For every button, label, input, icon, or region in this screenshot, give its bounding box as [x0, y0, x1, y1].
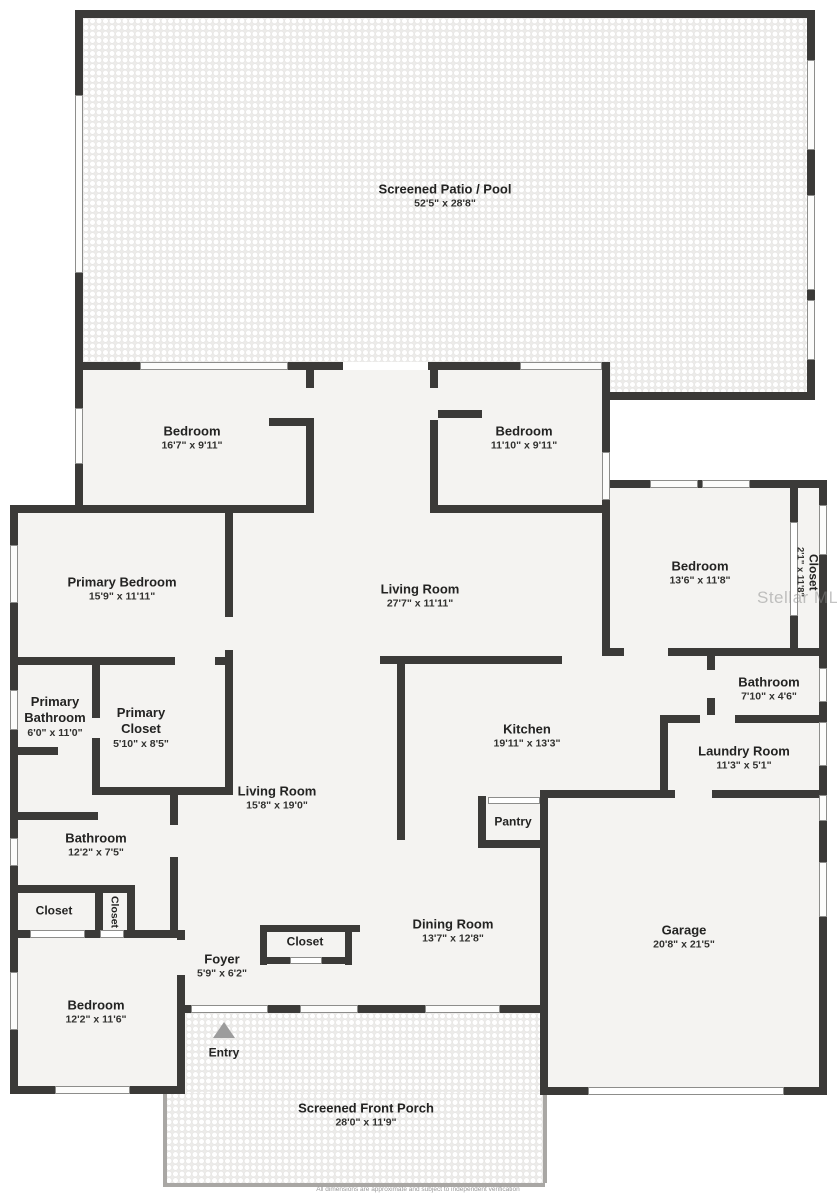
wall-segment: [782, 1087, 827, 1095]
room-dimensions: 13'6" x 11'8": [669, 575, 730, 588]
room-name: Primary Bathroom: [15, 694, 95, 727]
wall-segment: [602, 392, 815, 400]
room-name: Closet: [107, 896, 120, 928]
room-name: Bedroom: [491, 423, 557, 439]
room-dimensions: 11'10" x 9'11": [491, 440, 557, 453]
room-name: Dining Room: [413, 916, 494, 932]
room-name: Laundry Room: [698, 743, 790, 759]
wall-segment: [790, 488, 798, 522]
screen-wall-segment: [543, 1095, 547, 1183]
wall-segment: [397, 664, 405, 840]
wall-segment: [540, 1087, 590, 1095]
stellar-mls-watermark: Stellar MLS: [757, 588, 837, 608]
window: [819, 795, 827, 821]
room-name: Living Room: [238, 783, 317, 799]
wall-segment: [225, 650, 233, 795]
wall-segment: [18, 747, 58, 755]
wall-segment: [10, 505, 314, 513]
room-name: Bathroom: [65, 830, 126, 846]
room-dimensions: 13'7" x 12'8": [413, 933, 494, 946]
room-label-living-room-upper: Living Room 27'7" x 11'11": [381, 581, 460, 610]
room-name: Kitchen: [494, 721, 561, 737]
room-name: Closet: [36, 904, 73, 919]
room-dimensions: 15'9" x 11'11": [67, 591, 176, 604]
wall-segment: [75, 10, 815, 18]
door-opening: [100, 930, 124, 938]
room-label-kitchen: Kitchen 19'11" x 13'3": [494, 721, 561, 750]
wall-segment: [438, 410, 482, 418]
wall-segment: [260, 957, 290, 964]
wall-segment: [322, 957, 352, 964]
door-opening: [588, 1087, 784, 1095]
window: [75, 95, 83, 273]
window: [650, 480, 698, 488]
wall-segment: [668, 648, 827, 656]
wall-segment: [660, 715, 668, 792]
room-dimensions: 11'3" x 5'1": [698, 760, 790, 773]
room-name: Garage: [653, 922, 715, 938]
wall-segment: [269, 418, 314, 426]
window: [520, 362, 602, 370]
entry-arrow-icon: [213, 1022, 235, 1038]
room-dimensions: 12'2" x 7'5": [65, 847, 126, 860]
room-label-bedroom-right: Bedroom 13'6" x 11'8": [669, 558, 730, 587]
room-dimensions: 19'11" x 13'3": [494, 738, 561, 751]
room-dimensions: 6'0" x 11'0": [15, 727, 95, 740]
window: [702, 480, 750, 488]
room-dimensions: 28'0" x 11'9": [298, 1117, 434, 1130]
window: [140, 362, 288, 370]
door-opening: [30, 930, 85, 938]
room-label-living-room-lower: Living Room 15'8" x 19'0": [238, 783, 317, 812]
room-label-garage: Garage 20'8" x 21'5": [653, 922, 715, 951]
room-dimensions: 27'7" x 11'11": [381, 598, 460, 611]
room-label-closet-left-vertical: Closet: [107, 896, 120, 928]
wall-segment: [225, 505, 233, 617]
room-name: Living Room: [381, 581, 460, 597]
wall-segment: [735, 715, 819, 723]
window: [807, 60, 815, 150]
room-name: Foyer: [197, 951, 247, 967]
room-name: Pantry: [494, 815, 531, 830]
wall-segment: [602, 648, 624, 656]
room-dimensions: 5'10" x 8'5": [106, 738, 176, 751]
door-opening: [191, 1005, 268, 1013]
room-label-bedroom-top-right: Bedroom 11'10" x 9'11": [491, 423, 557, 452]
door-opening: [290, 957, 322, 964]
room-label-primary-bathroom: Primary Bathroom 6'0" x 11'0": [15, 694, 95, 740]
wall-segment: [215, 657, 233, 665]
wall-segment: [430, 505, 610, 513]
room-label-closet-foyer: Closet: [287, 935, 324, 950]
screened-area: [610, 362, 807, 392]
room-label-primary-closet: Primary Closet 5'10" x 8'5": [106, 705, 176, 751]
wall-segment: [707, 656, 715, 670]
room-label-closet-left: Closet: [36, 904, 73, 919]
wall-segment: [177, 975, 185, 1094]
wall-segment: [10, 812, 98, 820]
room-name: Screened Patio / Pool: [379, 181, 512, 197]
wall-segment: [170, 857, 178, 930]
window: [10, 838, 18, 866]
wall-segment: [183, 1005, 191, 1013]
room-name: Primary Bedroom: [67, 574, 176, 590]
room-label-front-porch: Screened Front Porch 28'0" x 11'9": [298, 1100, 434, 1129]
window: [819, 862, 827, 917]
room-name: Entry: [209, 1046, 240, 1061]
room-dimensions: 5'9" x 6'2": [197, 968, 247, 981]
window: [300, 1005, 358, 1013]
wall-segment: [478, 840, 548, 848]
door-opening: [488, 797, 540, 804]
room-name: Bedroom: [669, 558, 730, 574]
room-name: Bedroom: [161, 423, 222, 439]
window: [807, 195, 815, 290]
screen-wall-segment: [163, 1093, 167, 1186]
wall-segment: [540, 790, 675, 798]
window: [10, 972, 18, 1030]
window: [425, 1005, 500, 1013]
window: [55, 1086, 130, 1094]
window: [819, 722, 827, 766]
wall-segment: [170, 795, 178, 825]
room-dimensions: 15'8" x 19'0": [238, 800, 317, 813]
window: [10, 545, 18, 603]
room-label-pantry: Pantry: [494, 815, 531, 830]
room-dimensions: 20'8" x 21'5": [653, 939, 715, 952]
room-name: Closet: [287, 935, 324, 950]
room-dimensions: 52'5" x 28'8": [379, 198, 512, 211]
room-name: Bedroom: [65, 997, 126, 1013]
room-label-laundry-room: Laundry Room 11'3" x 5'1": [698, 743, 790, 772]
wall-segment: [177, 930, 185, 940]
room-label-dining-room: Dining Room 13'7" x 12'8": [413, 916, 494, 945]
wall-segment: [380, 656, 562, 664]
room-label-bathroom-right: Bathroom 7'10" x 4'6": [738, 674, 799, 703]
wall-segment: [707, 698, 715, 715]
room-dimensions: 16'7" x 9'11": [161, 440, 222, 453]
wall-segment: [10, 657, 175, 665]
room-name: Primary Closet: [106, 705, 176, 738]
wall-segment: [10, 885, 135, 893]
room-name: Bathroom: [738, 674, 799, 690]
room-label-primary-bedroom: Primary Bedroom 15'9" x 11'11": [67, 574, 176, 603]
room-label-bedroom-top-left: Bedroom 16'7" x 9'11": [161, 423, 222, 452]
disclaimer-text: All dimensions are approximate and subje…: [316, 1186, 519, 1193]
room-label-foyer: Foyer 5'9" x 6'2": [197, 951, 247, 980]
room-label-bedroom-bottom-left: Bedroom 12'2" x 11'6": [65, 997, 126, 1026]
room-dimensions: 12'2" x 11'6": [65, 1014, 126, 1027]
window: [807, 300, 815, 360]
wall-segment: [306, 370, 314, 388]
floor-plan: Screened Patio / Pool 52'5" x 28'8" Bedr…: [0, 0, 837, 1200]
room-name: Screened Front Porch: [298, 1100, 434, 1116]
window: [75, 408, 83, 464]
wall-segment: [712, 790, 827, 798]
room-label-entry: Entry: [209, 1046, 240, 1061]
wall-segment: [306, 420, 314, 513]
wall-segment: [430, 420, 438, 513]
window: [819, 668, 827, 702]
room-label-screened-patio: Screened Patio / Pool 52'5" x 28'8": [379, 181, 512, 210]
room-dimensions: 7'10" x 4'6": [738, 691, 799, 704]
wall-segment: [92, 787, 233, 795]
window: [602, 452, 610, 500]
room-label-bathroom-left: Bathroom 12'2" x 7'5": [65, 830, 126, 859]
wall-segment: [430, 370, 438, 388]
